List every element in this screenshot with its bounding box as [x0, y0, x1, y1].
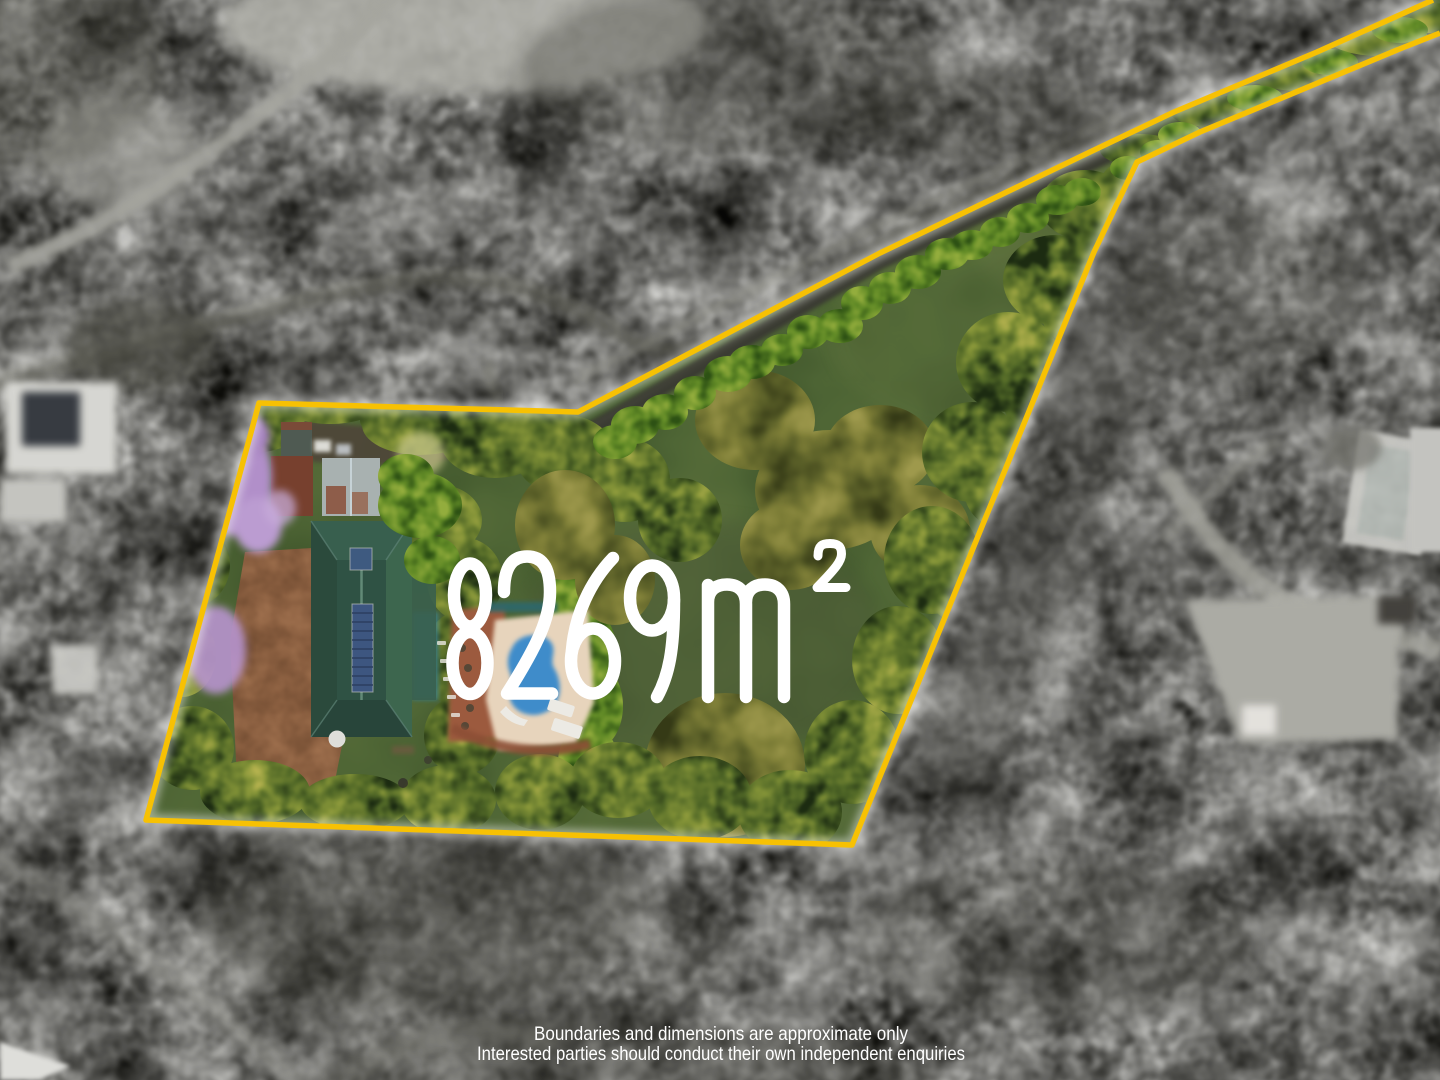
- svg-text:Interested parties should cond: Interested parties should conduct their …: [477, 1043, 965, 1065]
- svg-text:Boundaries and dimensions are: Boundaries and dimensions are approximat…: [534, 1023, 908, 1045]
